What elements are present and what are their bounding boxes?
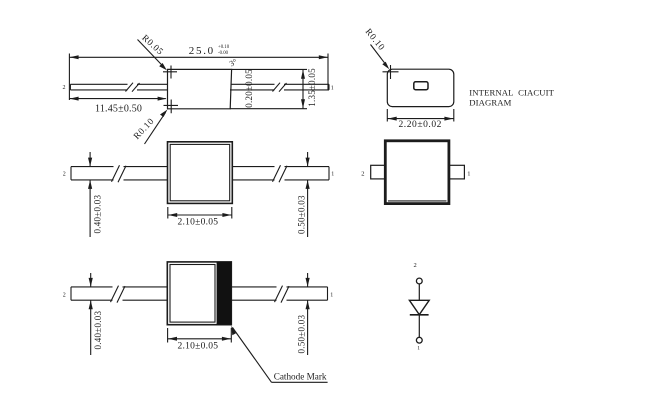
svg-text:11.45±0.50: 11.45±0.50 xyxy=(95,104,142,115)
svg-text:0.50±0.03: 0.50±0.03 xyxy=(296,315,306,354)
svg-text:0.40±0.03: 0.40±0.03 xyxy=(93,195,103,234)
svg-text:-0.00: -0.00 xyxy=(218,51,229,56)
svg-text:1: 1 xyxy=(331,85,334,91)
svg-text:1: 1 xyxy=(330,292,333,298)
svg-text:2: 2 xyxy=(63,292,66,298)
svg-text:2: 2 xyxy=(63,85,66,91)
svg-text:1: 1 xyxy=(331,171,334,177)
svg-text:Cathode Mark: Cathode Mark xyxy=(274,372,327,382)
svg-text:DIAGRAM: DIAGRAM xyxy=(469,98,511,108)
svg-text:1: 1 xyxy=(467,171,470,178)
svg-text:2: 2 xyxy=(361,171,364,178)
svg-text:INTERNAL CIACUIT: INTERNAL CIACUIT xyxy=(469,87,554,97)
svg-text:+0.10: +0.10 xyxy=(218,45,230,50)
svg-text:2.20±0.02: 2.20±0.02 xyxy=(399,120,442,130)
svg-text:1: 1 xyxy=(417,346,420,352)
svg-text:0.20±0.05: 0.20±0.05 xyxy=(244,69,254,108)
svg-text:2.10±0.05: 2.10±0.05 xyxy=(178,217,219,227)
svg-text:1.35±0.05: 1.35±0.05 xyxy=(307,68,317,107)
svg-text:2.10±0.05: 2.10±0.05 xyxy=(178,342,219,352)
svg-text:0.40±0.03: 0.40±0.03 xyxy=(93,311,103,350)
svg-text:0.50±0.03: 0.50±0.03 xyxy=(296,195,306,234)
svg-text:25.0: 25.0 xyxy=(189,45,215,57)
svg-text:2: 2 xyxy=(63,171,66,177)
svg-text:2: 2 xyxy=(414,262,417,269)
